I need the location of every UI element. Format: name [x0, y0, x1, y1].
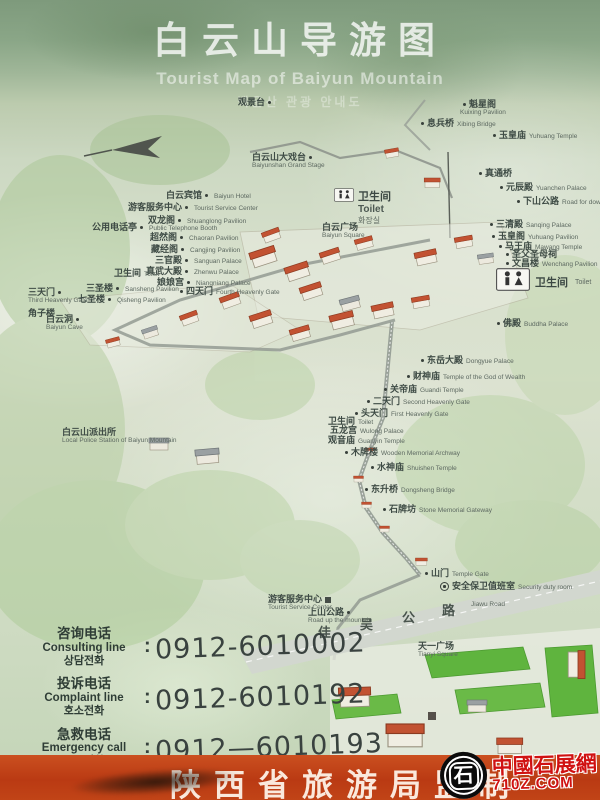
- contact-row-consulting: 咨询电话 Consulting line 상담전화 : 0912-6010002: [28, 626, 383, 667]
- marker-dot-icon: [517, 200, 520, 203]
- map-label: 文昌楼Wenchang Pavilion: [503, 258, 598, 268]
- map-label: 真武大殿Zhenwu Palace: [146, 266, 239, 276]
- marker-dot-icon: [365, 488, 368, 491]
- marker-dot-icon: [140, 226, 143, 229]
- consulting-label-zh: 咨询电话: [28, 626, 140, 642]
- marker-dot-icon: [268, 101, 271, 104]
- toilet-right-en: Toilet: [575, 279, 591, 286]
- map-label: 五龙宫Wulong Palace: [330, 425, 404, 435]
- map-label: 下山公路Road for downhill: [514, 196, 600, 206]
- marker-dot-icon: [497, 322, 500, 325]
- marker-dot-icon: [371, 466, 374, 469]
- map-label: 水神庙Shuishen Temple: [368, 462, 457, 472]
- marker-dot-icon: [181, 248, 184, 251]
- map-label: 游客服务中心Tourist Service Center: [128, 202, 258, 212]
- consulting-label-en: Consulting line: [28, 642, 140, 655]
- map-label: 白云山大戏台Baiyunshan Grand Stage: [252, 152, 325, 170]
- marker-dot-icon: [425, 572, 428, 575]
- map-label: 三天门Third Heavenly Gate: [28, 287, 88, 305]
- map-label: 公用电话亭Public Telephone Booth: [92, 222, 217, 232]
- toilet-label-zh: 卫生间: [358, 188, 391, 204]
- emergency-label-zh: 急救电话: [28, 727, 140, 743]
- map-label: 白云宾馆Baiyun Hotel: [166, 190, 251, 200]
- restroom-icon: [334, 188, 354, 226]
- marker-dot-icon: [180, 290, 183, 293]
- map-label: 三官殿Sanguan Palace: [155, 255, 242, 265]
- marker-dot-icon: [345, 451, 348, 454]
- marker-dot-icon: [180, 236, 183, 239]
- road-name-character: 路: [442, 600, 455, 619]
- marker-dot-icon: [108, 298, 111, 301]
- marker-dot-icon: [493, 134, 496, 137]
- map-label: Jiawu Road: [468, 598, 505, 608]
- watermark-site-url: 710Z.COM: [492, 774, 597, 793]
- marker-dot-icon: [407, 375, 410, 378]
- marker-dot-icon: [185, 270, 188, 273]
- restroom-icon: [496, 268, 530, 296]
- marker-dot-icon: [492, 235, 495, 238]
- toilet-label-en: Toilet: [358, 204, 391, 215]
- map-label: 息兵桥Xibing Bridge: [418, 118, 496, 128]
- marker-dot-icon: [347, 611, 350, 614]
- marker-dot-icon: [490, 223, 493, 226]
- marker-dot-icon: [506, 262, 509, 265]
- contact-row-complaint: 投诉电话 Complaint line 호소전화 : 0912-6010192: [28, 676, 383, 717]
- map-label: 四天门Fourth Heavenly Gate: [177, 286, 280, 296]
- map-label: 七圣楼Qisheng Pavilion: [78, 294, 166, 304]
- map-label: 真通桥: [476, 168, 512, 178]
- road-name-character: 公: [402, 607, 415, 626]
- complaint-label-ko: 호소전화: [28, 705, 140, 718]
- map-label: 玉皇庙Yuhuang Temple: [490, 130, 577, 140]
- watermark-glyph: 石: [448, 761, 479, 790]
- marker-square-icon: [325, 597, 331, 603]
- emergency-label-en: Emergency call: [28, 742, 140, 755]
- marker-dot-icon: [76, 318, 79, 321]
- tourist-map-sign-photo: 白云山导游图 Tourist Map of Baiyun Mountain 백운…: [0, 0, 600, 800]
- marker-dot-icon: [205, 194, 208, 197]
- marker-dot-icon: [499, 245, 502, 248]
- map-label: 玉皇阁Yuhuang Pavilion: [489, 231, 578, 241]
- marker-dot-icon: [383, 508, 386, 511]
- colon: :: [144, 686, 151, 709]
- map-label: 三清殿Sanqing Palace: [487, 219, 572, 229]
- toilet-label-ko: 화장실: [358, 215, 391, 226]
- toilet-right-zh: 卫生间: [535, 274, 568, 290]
- marker-dot-icon: [463, 103, 466, 106]
- marker-dot-icon: [367, 400, 370, 403]
- map-label: 石牌坊Stone Memorial Gateway: [380, 504, 492, 514]
- marker-dot-icon: [421, 359, 424, 362]
- map-label: 二天门Second Heavenly Gate: [364, 396, 470, 406]
- consulting-label-ko: 상담전화: [28, 655, 140, 668]
- complaint-label-en: Complaint line: [28, 692, 140, 705]
- marker-dot-icon: [421, 122, 424, 125]
- badge-icon: [440, 582, 449, 591]
- map-label: 东升桥Dongsheng Bridge: [362, 484, 455, 494]
- marker-dot-icon: [185, 259, 188, 262]
- map-label: 山门Temple Gate: [422, 568, 489, 578]
- map-label: 木牌楼Wooden Memorial Archway: [342, 447, 460, 457]
- map-label: 观景台: [238, 97, 274, 107]
- consulting-number: 0912-6010002: [154, 628, 366, 666]
- toilet-label-center: 卫生间 Toilet 화장실: [334, 188, 391, 226]
- map-label: 关帝庙Guandi Temple: [381, 384, 464, 394]
- marker-dot-icon: [500, 186, 503, 189]
- marker-dot-icon: [309, 156, 312, 159]
- toilet-label-right: 卫生间 Toilet: [496, 268, 591, 296]
- map-label: 东岳大殿Dongyue Palace: [418, 355, 514, 365]
- map-label: 观音庙Guanyin Temple: [328, 435, 405, 445]
- map-label: 三圣楼Sansheng Pavilion: [86, 283, 179, 293]
- complaint-label-zh: 投诉电话: [28, 676, 140, 692]
- map-label: 藏经阁Cangjing Pavilion: [151, 244, 240, 254]
- map-label: 超然阁Chaoran Pavilion: [150, 232, 239, 242]
- marker-dot-icon: [355, 412, 358, 415]
- marker-dot-icon: [384, 388, 387, 391]
- colon: :: [144, 635, 151, 658]
- marker-dot-icon: [479, 172, 482, 175]
- map-label: 财神庙Temple of the God of Wealth: [404, 371, 525, 381]
- complaint-number: 0912-6010192: [154, 678, 366, 716]
- map-label: 白云洞Baiyun Cave: [46, 314, 83, 332]
- marker-dot-icon: [506, 253, 509, 256]
- marker-dot-icon: [58, 291, 61, 294]
- map-label: 卫生间Toilet: [114, 268, 159, 278]
- map-label: 白云山派出所Local Police Station of Baiyun Mou…: [62, 427, 177, 445]
- watermark: 石 中國石展網 710Z.COM: [439, 747, 598, 799]
- map-label: 佛殿Buddha Palace: [494, 318, 568, 328]
- map-label: 魁星阁Kuixing Pavilion: [460, 99, 506, 117]
- map-label: 天一广场Tianyi Square: [418, 641, 458, 659]
- map-label: 元辰殿Yuanchen Palace: [497, 182, 587, 192]
- marker-dot-icon: [116, 287, 119, 290]
- marker-dot-icon: [185, 206, 188, 209]
- map-label: 安全保卫值班室Security duty room: [440, 581, 572, 592]
- marker-dot-icon: [187, 281, 190, 284]
- watermark-stone-logo-icon: 石: [439, 751, 488, 800]
